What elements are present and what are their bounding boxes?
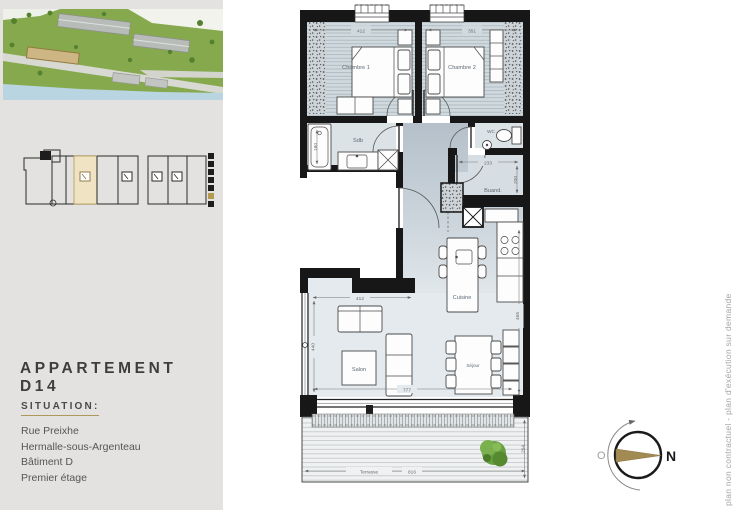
window-living-bottom bbox=[317, 400, 513, 415]
stool bbox=[478, 265, 486, 278]
compass: N O bbox=[597, 421, 676, 490]
dim-buanderie-w: 233 bbox=[484, 160, 492, 166]
bed-chambre2 bbox=[426, 47, 484, 97]
page-title: APPARTEMENT D14 bbox=[20, 360, 220, 396]
address-floor: Premier étage bbox=[21, 471, 141, 487]
washing-machine bbox=[378, 150, 398, 170]
nightstand bbox=[398, 99, 412, 114]
wardrobe-chambre2 bbox=[490, 30, 503, 82]
situation-heading: SITUATION: bbox=[21, 401, 99, 416]
key-plan-legend bbox=[208, 153, 214, 207]
label-wc: WC bbox=[487, 129, 495, 134]
dresser-chambre1 bbox=[337, 97, 373, 114]
label-cuisine: Cuisine bbox=[453, 295, 472, 301]
stool bbox=[439, 265, 447, 278]
address-city: Hermalle-sous-Argenteau bbox=[21, 440, 141, 456]
wall-cabinets bbox=[503, 330, 519, 395]
kitchen-shelf bbox=[485, 209, 518, 222]
stool bbox=[478, 246, 486, 259]
legend-active-level bbox=[208, 193, 214, 199]
nightstand bbox=[398, 30, 412, 45]
compass-north-label: N bbox=[666, 448, 676, 464]
page: 412 351 180 233 200 412 440 777 465 bbox=[0, 0, 736, 510]
label-terrasse: Terrasse bbox=[360, 470, 379, 476]
dim-chambre1: 412 bbox=[357, 28, 365, 34]
dim-terrasse-w: 816 bbox=[408, 470, 416, 476]
window-chambre2 bbox=[430, 5, 464, 22]
bathroom-sink bbox=[338, 152, 378, 170]
nightstand bbox=[426, 30, 440, 45]
label-chambre1: Chambre 1 bbox=[342, 65, 370, 71]
dim-terrasse-d: 264 bbox=[521, 445, 527, 453]
floor-plan: 412 351 180 233 200 412 440 777 465 bbox=[300, 5, 530, 482]
label-salon: Salon bbox=[352, 367, 366, 373]
address-block: Rue Preixhe Hermalle-sous-Argenteau Bâti… bbox=[21, 424, 141, 486]
technical-shaft bbox=[441, 183, 463, 212]
bathtub bbox=[308, 124, 331, 170]
label-buanderie: Buand. bbox=[484, 188, 502, 194]
wall-texture-right bbox=[504, 19, 521, 114]
dim-living-bottom: 777 bbox=[403, 388, 411, 394]
disclaimer-text: plan non contractuel - plan d'exécution … bbox=[723, 248, 733, 506]
dim-living-left: 440 bbox=[311, 343, 317, 351]
dim-buanderie-d: 200 bbox=[513, 176, 519, 184]
compass-west-label: O bbox=[597, 450, 606, 462]
wc-basin bbox=[483, 141, 492, 150]
dim-sdb: 180 bbox=[313, 143, 319, 151]
address-street: Rue Preixhe bbox=[21, 424, 141, 440]
stool bbox=[439, 246, 447, 259]
appliance-box bbox=[463, 207, 483, 227]
floor-living-notch bbox=[307, 278, 352, 293]
label-chambre2: Chambre 2 bbox=[448, 65, 476, 71]
wall-texture-left bbox=[309, 19, 326, 114]
site-map bbox=[3, 9, 223, 100]
dim-cuisine-right: 465 bbox=[515, 312, 521, 320]
address-building: Bâtiment D bbox=[21, 455, 141, 471]
dim-chambre2: 351 bbox=[468, 28, 476, 34]
dim-salon: 412 bbox=[356, 296, 364, 302]
label-sdb: Sdb bbox=[353, 138, 363, 144]
nightstand bbox=[426, 99, 440, 114]
bed-chambre1 bbox=[352, 47, 412, 97]
window-chambre1 bbox=[355, 5, 389, 22]
floor-hall bbox=[403, 123, 468, 172]
label-sejour: Séjour bbox=[466, 363, 480, 368]
